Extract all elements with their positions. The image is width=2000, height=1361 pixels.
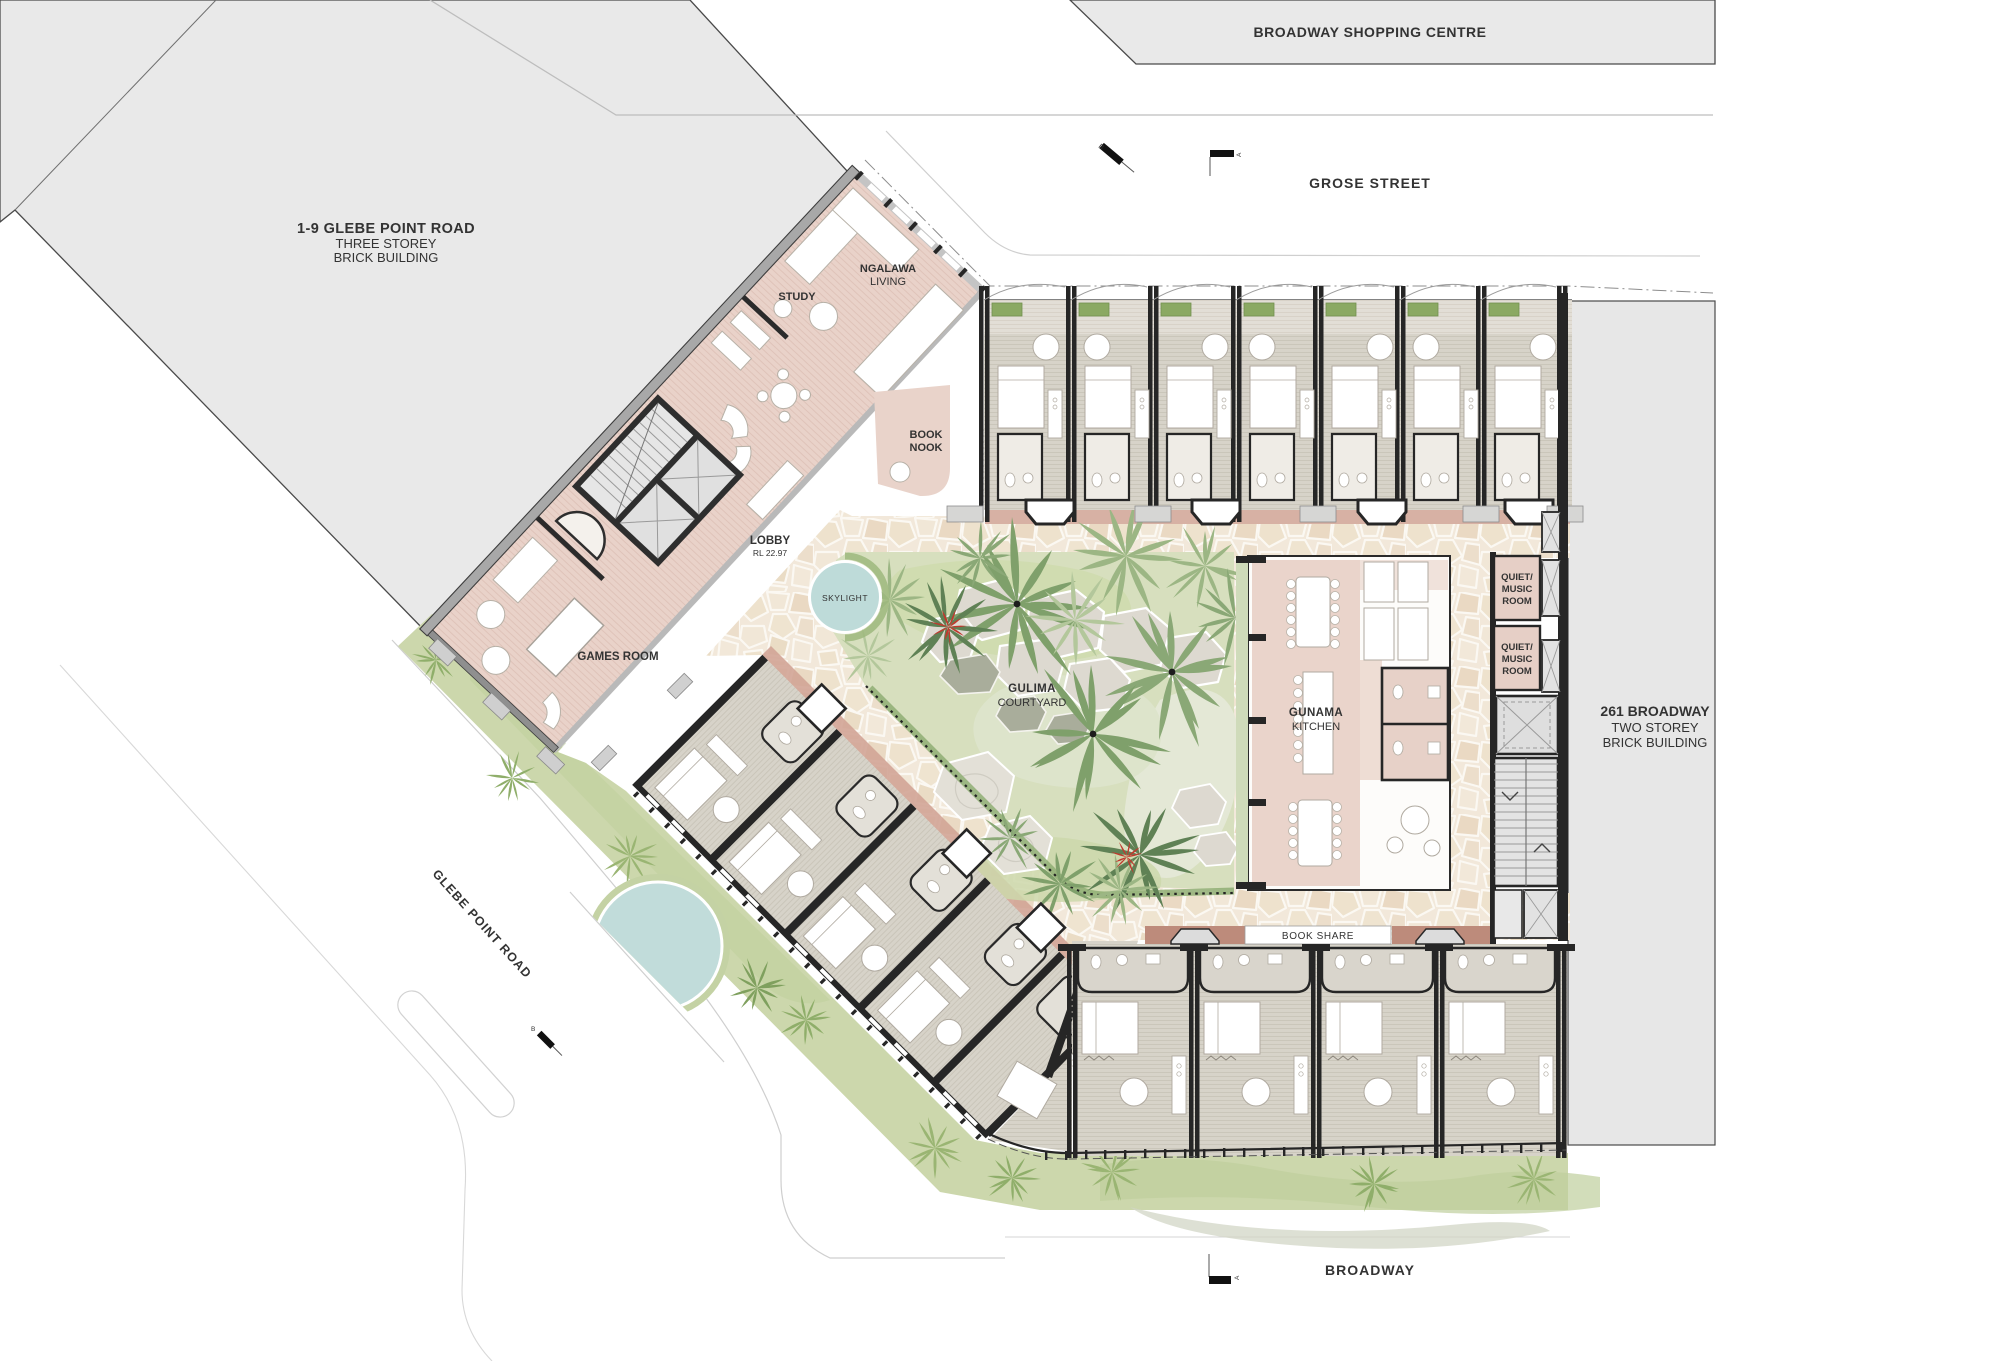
svg-text:BROADWAY: BROADWAY <box>1325 1262 1415 1278</box>
svg-text:LIVING: LIVING <box>870 276 906 288</box>
svg-text:GAMES ROOM: GAMES ROOM <box>577 651 658 663</box>
svg-text:QUIET/: QUIET/ <box>1501 642 1533 653</box>
svg-text:MUSIC: MUSIC <box>1502 654 1533 665</box>
svg-text:GUNAMA: GUNAMA <box>1289 707 1343 719</box>
svg-text:KITCHEN: KITCHEN <box>1292 721 1340 733</box>
svg-text:B: B <box>531 1026 535 1033</box>
svg-text:1-9 GLEBE POINT ROAD: 1-9 GLEBE POINT ROAD <box>297 221 475 237</box>
svg-text:LOBBY: LOBBY <box>750 535 791 547</box>
svg-text:A: A <box>1236 152 1243 157</box>
svg-text:RL 22.97: RL 22.97 <box>753 548 787 558</box>
svg-text:GULIMA: GULIMA <box>1008 683 1056 695</box>
svg-text:NOOK: NOOK <box>910 442 943 454</box>
svg-text:BOOK: BOOK <box>910 429 943 441</box>
svg-text:261 BROADWAY: 261 BROADWAY <box>1600 703 1710 719</box>
svg-text:BRICK BUILDING: BRICK BUILDING <box>334 250 439 265</box>
svg-text:MUSIC: MUSIC <box>1502 584 1533 595</box>
svg-text:ROOM: ROOM <box>1502 596 1532 607</box>
svg-text:BOOK SHARE: BOOK SHARE <box>1282 931 1354 942</box>
svg-text:THREE STOREY: THREE STOREY <box>336 236 437 251</box>
svg-text:SKYLIGHT: SKYLIGHT <box>822 593 868 603</box>
svg-text:GROSE STREET: GROSE STREET <box>1309 175 1431 191</box>
svg-text:COURTYARD: COURTYARD <box>998 697 1067 709</box>
svg-text:STUDY: STUDY <box>778 291 816 303</box>
svg-text:NGALAWA: NGALAWA <box>860 263 916 275</box>
svg-text:BROADWAY SHOPPING CENTRE: BROADWAY SHOPPING CENTRE <box>1254 24 1487 40</box>
svg-text:A: A <box>1234 1275 1241 1280</box>
svg-text:BRICK BUILDING: BRICK BUILDING <box>1603 735 1708 750</box>
svg-text:ROOM: ROOM <box>1502 666 1532 677</box>
svg-text:QUIET/: QUIET/ <box>1501 572 1533 583</box>
svg-text:TWO STOREY: TWO STOREY <box>1611 720 1698 735</box>
